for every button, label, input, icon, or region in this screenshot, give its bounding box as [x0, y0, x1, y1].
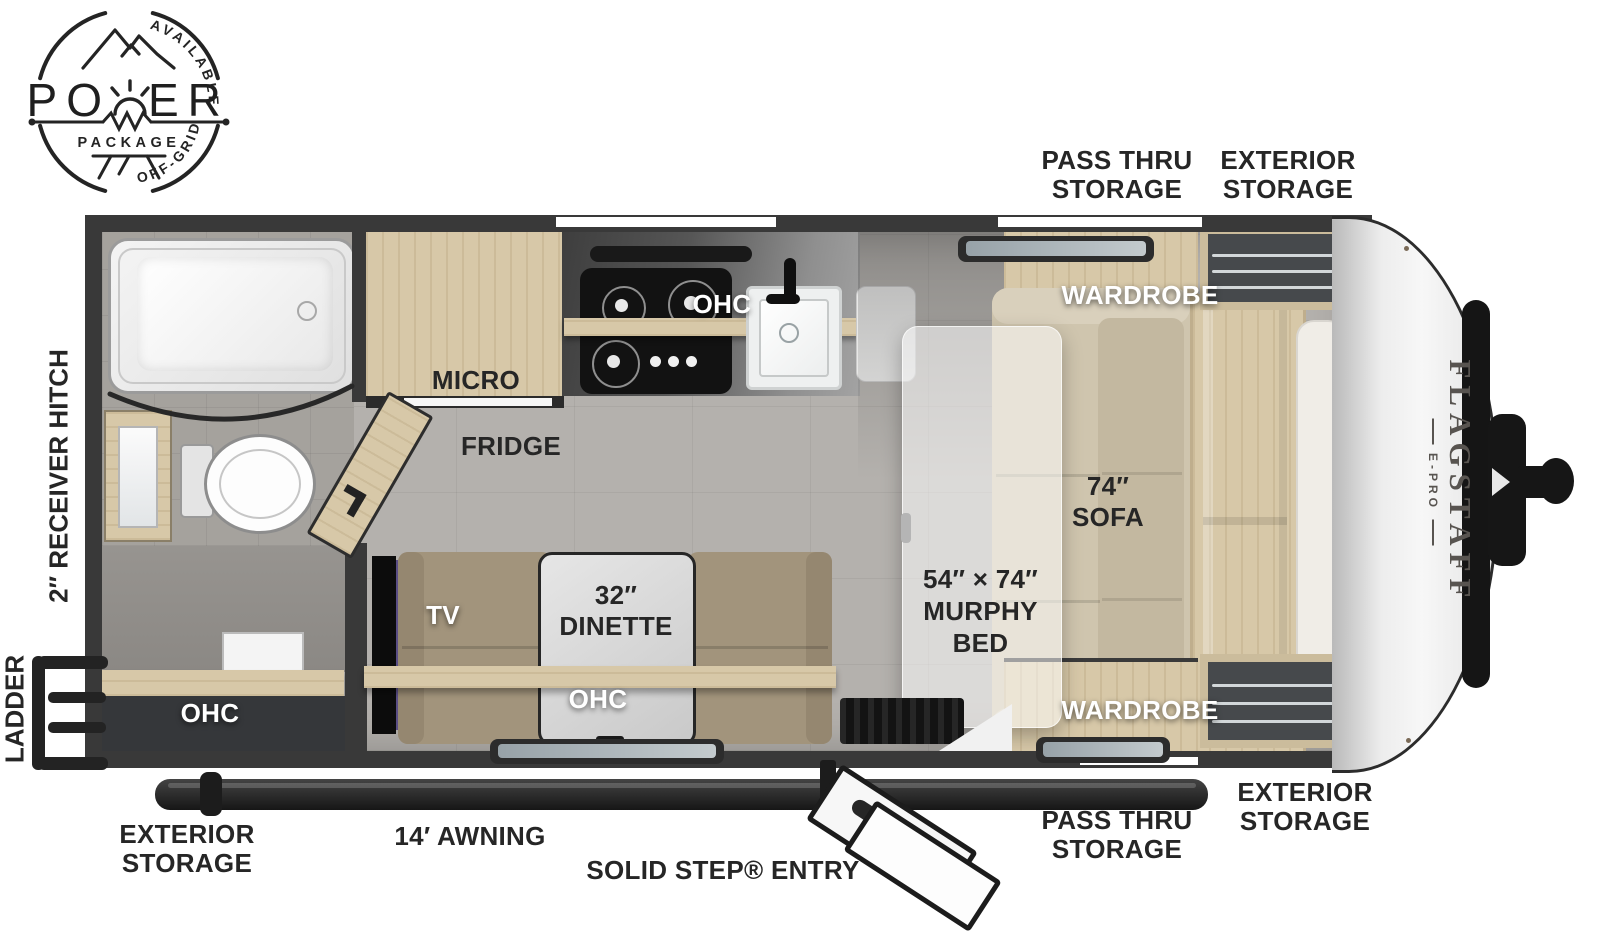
label-exterior-bottom-left: EXTERIOR STORAGE: [62, 820, 312, 878]
label-tv: TV: [383, 601, 503, 630]
label-awning: 14′ AWNING: [330, 822, 610, 851]
window-strip-top-kitchen: [556, 217, 776, 227]
label-dinette-size: 32″: [536, 581, 696, 610]
brand-rule-right: [1432, 519, 1434, 545]
micro-counter-highlight: [404, 398, 552, 406]
stove-knob-1: [650, 356, 661, 367]
range-hood-bar: [590, 246, 752, 262]
sink-drain: [779, 323, 799, 343]
label-dinette-ohc: OHC: [538, 685, 658, 714]
sofa-back-seam-2: [1102, 598, 1182, 601]
bed-frame-cross: [1203, 517, 1287, 525]
window-frame-dinette: [490, 739, 724, 764]
bathtub: [108, 238, 356, 394]
rear-counter-shelf: [102, 670, 344, 696]
wire-shelf-2: [1212, 270, 1334, 273]
window-frame-top-interior: [958, 236, 1154, 262]
mountains-icon: [83, 30, 174, 68]
toilet-bowl: [204, 434, 316, 534]
faucet-body: [784, 258, 796, 302]
window-glass-bottom-wardrobe: [1043, 742, 1163, 757]
ladder-rail: [32, 656, 45, 770]
burner-cap-1: [615, 299, 628, 312]
awning-bracket: [200, 772, 222, 816]
label-dinette: DINETTE: [536, 612, 696, 641]
ladder-arm-top: [38, 656, 108, 669]
label-exterior-top: EXTERIOR STORAGE: [1163, 146, 1413, 204]
ladder-arm-bottom: [38, 757, 108, 770]
cap-rivet-top: [1404, 246, 1409, 251]
brand-name: FLAGSTAFF: [1442, 360, 1478, 605]
murphy-bed-handle: [901, 513, 911, 543]
label-solid-step-entry: SOLID STEP® ENTRY: [543, 856, 903, 885]
label-sofa: SOFA: [1028, 503, 1188, 532]
line-dot-right: [223, 119, 230, 126]
badge-title-left: PO: [27, 74, 111, 126]
window-glass-top-interior: [966, 241, 1146, 256]
vanity-mirror: [118, 426, 158, 528]
hitch-coupler-knob: [1538, 458, 1574, 504]
window-frame-bottom-wardrobe: [1036, 737, 1170, 763]
toilet-seat-ring: [219, 449, 301, 519]
label-wardrobe-top: WARDROBE: [1030, 281, 1250, 310]
brand-logo: FLAGSTAFF E-PRO: [1426, 360, 1478, 605]
wire-shelf-1: [1212, 254, 1334, 257]
bench-right-seam: [692, 646, 828, 649]
wire-shelf-4: [1212, 684, 1334, 687]
label-fridge: FRIDGE: [431, 432, 591, 461]
bathtub-drain: [297, 301, 317, 321]
line-dot-left: [29, 119, 36, 126]
ladder-rung-1: [48, 692, 106, 703]
floorplan-page: { "colors": { "wall": "#393939", "floor"…: [0, 0, 1600, 897]
awning-highlight: [168, 783, 1196, 788]
badge-subtitle: PACKAGE: [78, 135, 181, 151]
label-exterior-bottom-right: EXTERIOR STORAGE: [1180, 778, 1430, 836]
brand-rule-left: [1432, 419, 1434, 445]
label-murphy-line2: BED: [888, 629, 1073, 658]
brand-model: E-PRO: [1426, 453, 1440, 511]
label-micro: MICRO: [396, 366, 556, 395]
ladder-rung-2: [48, 722, 106, 733]
tv: [372, 556, 396, 734]
label-wardrobe-bottom: WARDROBE: [1030, 696, 1250, 725]
brand-model-row: E-PRO: [1426, 360, 1440, 605]
label-kitchen-ohc: OHC: [662, 290, 782, 319]
label-rear-ohc: OHC: [150, 699, 270, 728]
window-glass-dinette: [498, 744, 716, 758]
bathroom-vanity: [104, 410, 172, 542]
burner-cap-3: [607, 355, 620, 368]
label-ladder: LADDER: [0, 655, 31, 763]
window-strip-top-wardrobe: [998, 217, 1202, 227]
label-murphy-line1: MURPHY: [888, 597, 1073, 626]
stove-knob-3: [686, 356, 697, 367]
stove-knob-2: [668, 356, 679, 367]
power-package-badge: AVAILABLE WITH PO ER PACKAGE OFF-GRID OP…: [26, 2, 232, 202]
badge-title-right: ER: [148, 74, 230, 126]
label-sofa-size: 74″: [1028, 472, 1188, 501]
furnace: [840, 698, 964, 744]
cap-rivet-bottom: [1406, 738, 1411, 743]
bench-left-seam: [402, 646, 548, 649]
wall-left: [85, 215, 102, 768]
label-murphy-size: 54″ × 74″: [888, 565, 1073, 594]
label-receiver-hitch: 2″ RECEIVER HITCH: [44, 349, 75, 603]
rear-divider-wall: [345, 543, 367, 751]
sun-icon: [112, 81, 148, 114]
